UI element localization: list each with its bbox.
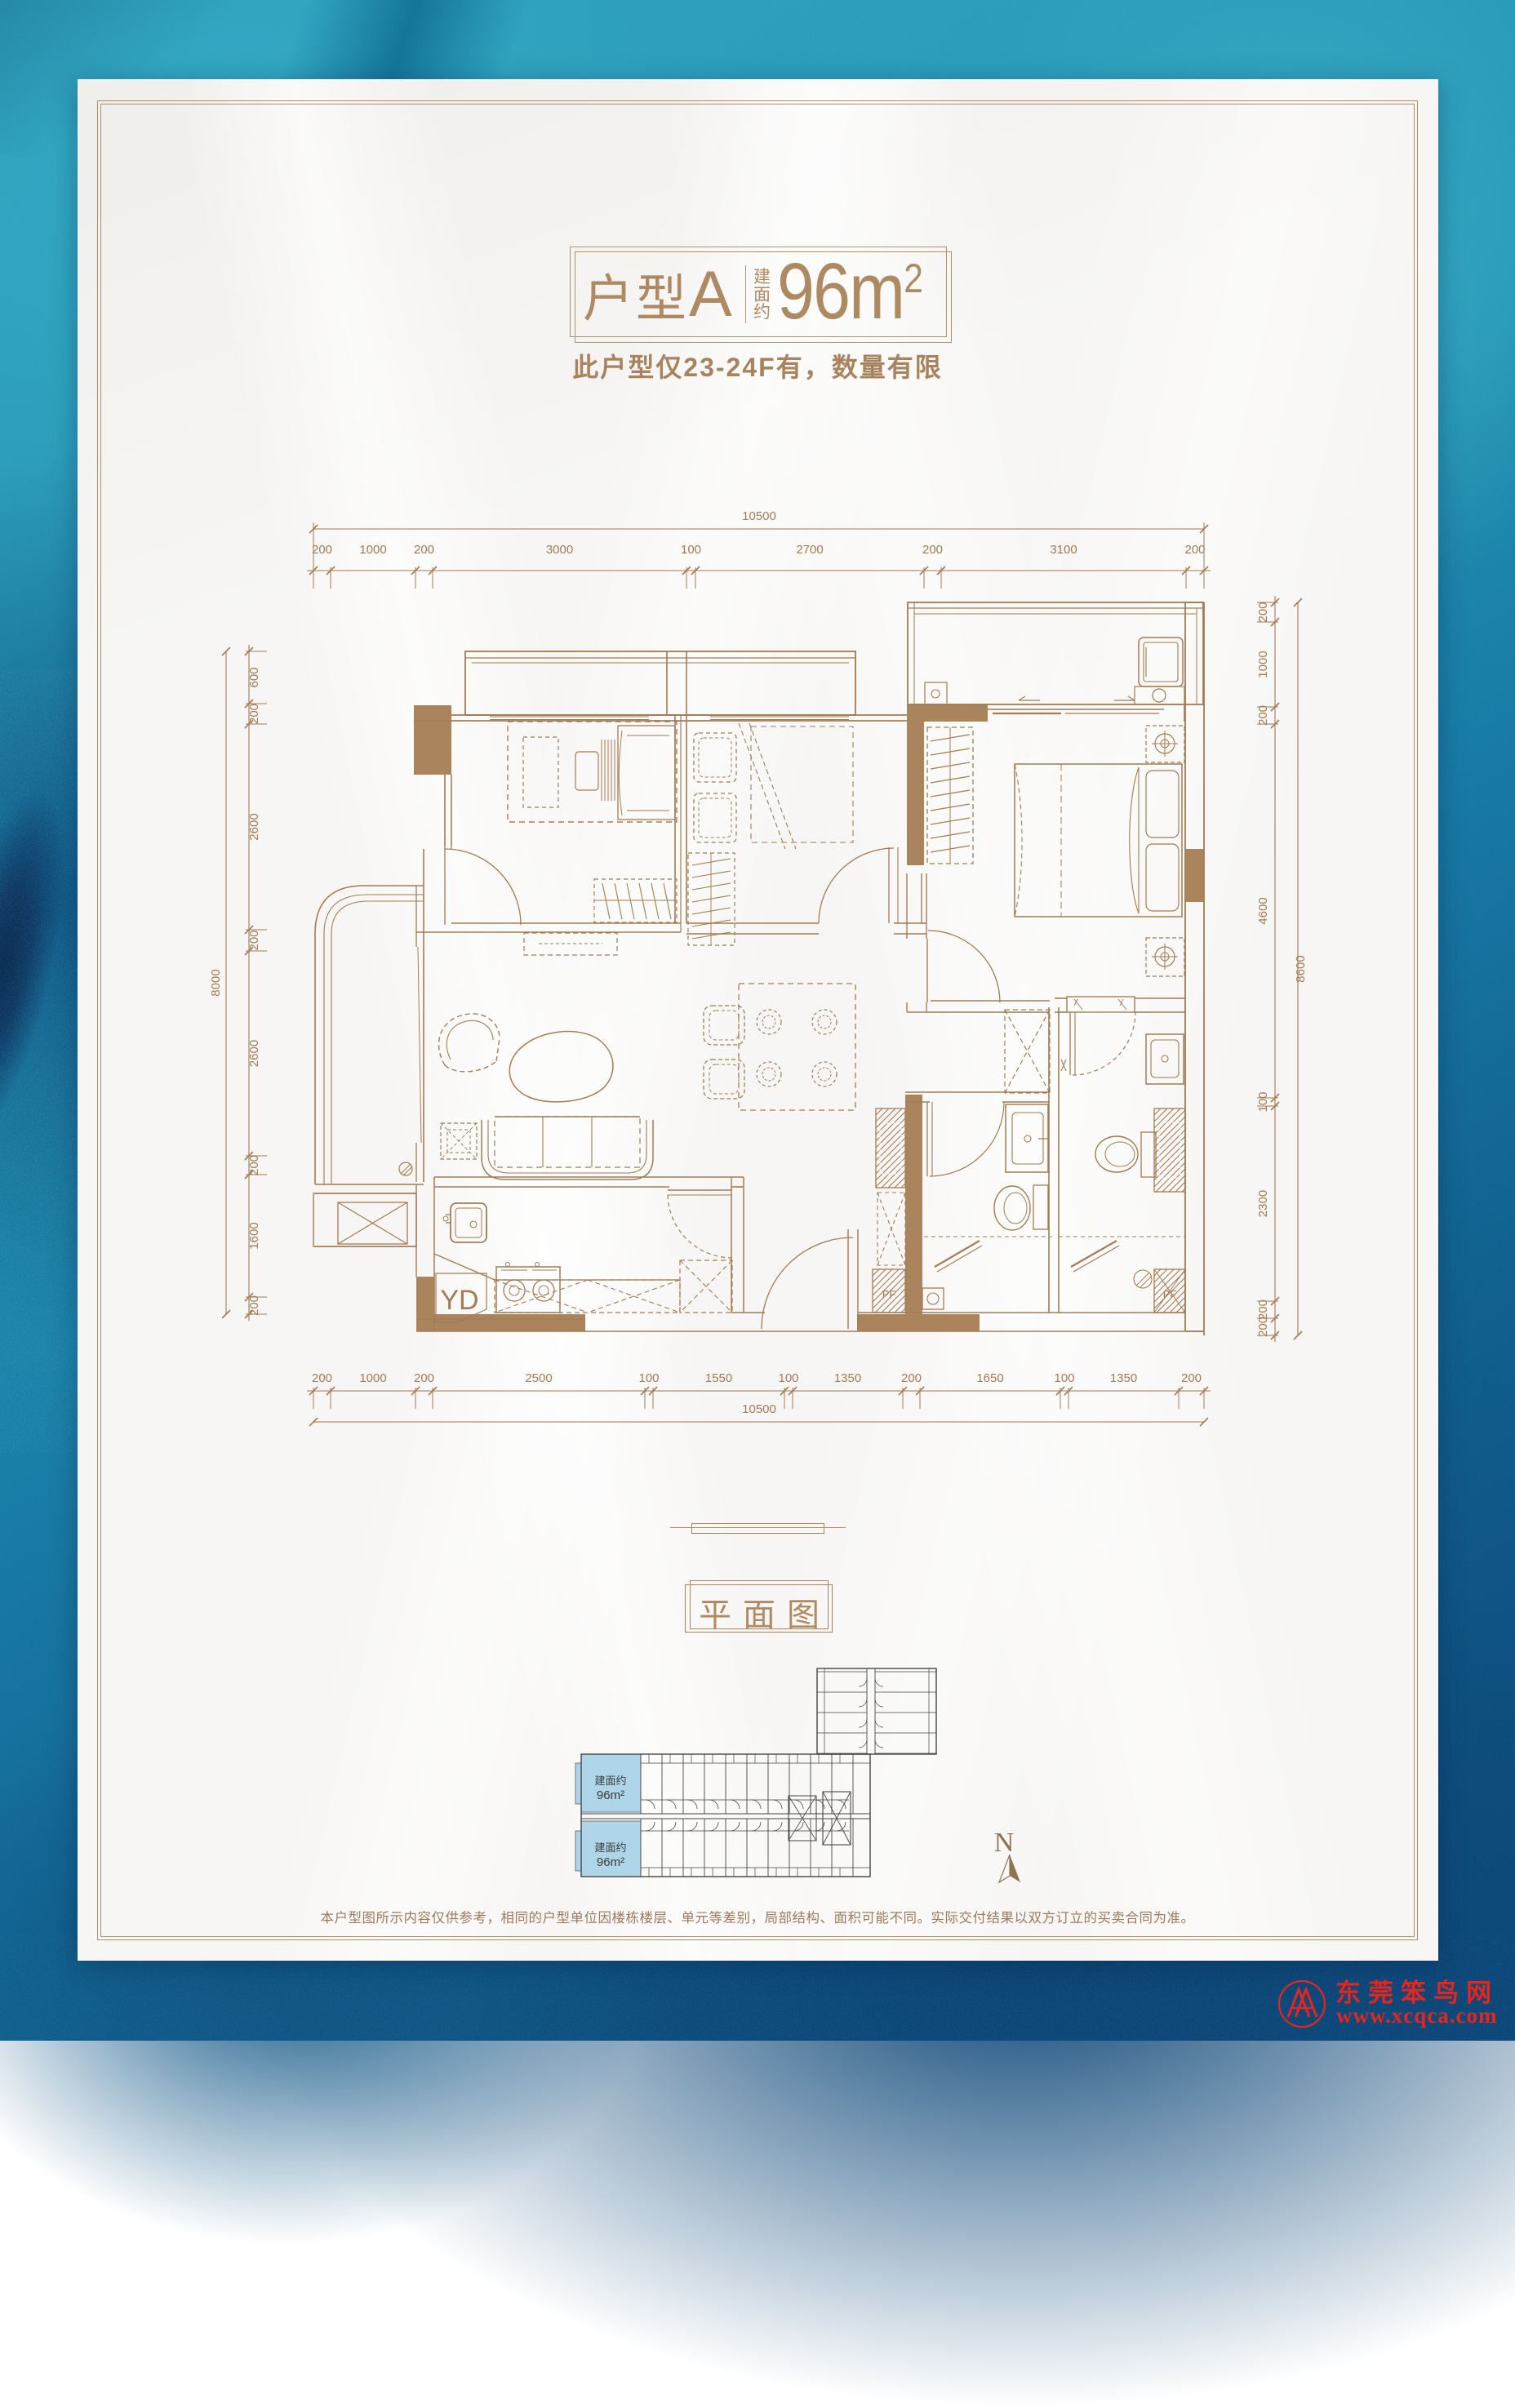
svg-text:www.xcqca.com: www.xcqca.com [1336,2003,1497,2028]
